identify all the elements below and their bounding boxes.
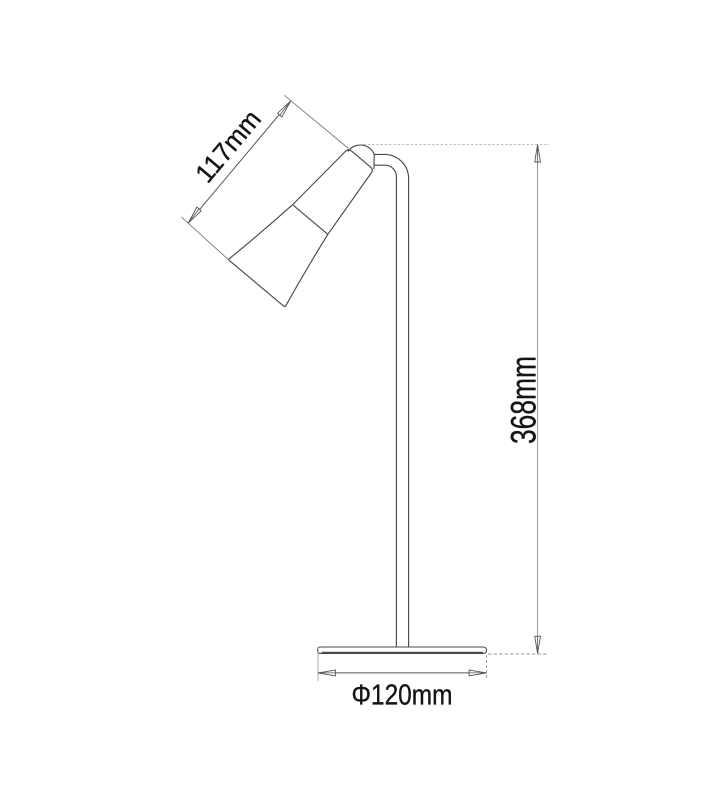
svg-text:Φ120mm: Φ120mm [352,679,453,711]
svg-text:368mm: 368mm [505,356,544,444]
